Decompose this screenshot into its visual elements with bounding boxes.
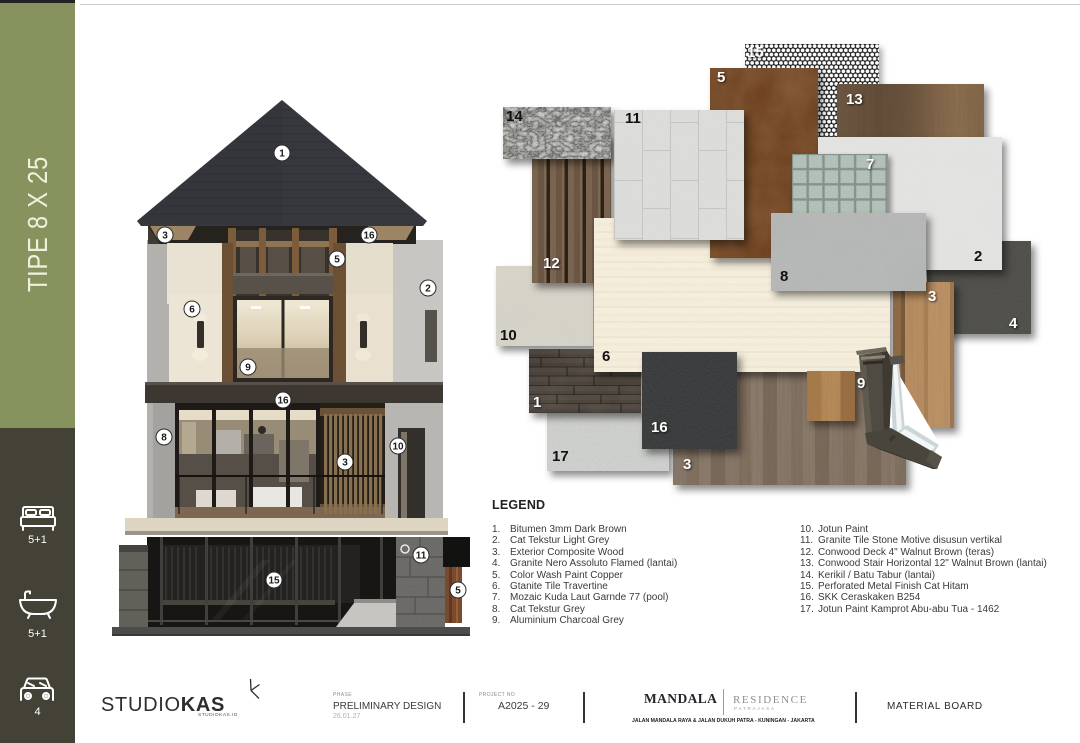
svg-text:3: 3 xyxy=(162,231,168,242)
svg-text:15: 15 xyxy=(268,576,280,587)
svg-text:16: 16 xyxy=(363,231,375,242)
svg-text:10: 10 xyxy=(392,442,404,453)
svg-text:16: 16 xyxy=(277,396,289,407)
svg-text:11: 11 xyxy=(416,551,427,562)
svg-text:3: 3 xyxy=(342,458,348,469)
svg-text:8: 8 xyxy=(161,433,167,444)
svg-text:2: 2 xyxy=(425,284,431,295)
svg-text:5: 5 xyxy=(455,586,461,597)
svg-text:9: 9 xyxy=(245,363,251,374)
svg-text:1: 1 xyxy=(279,149,285,160)
svg-text:5: 5 xyxy=(334,255,340,266)
svg-text:6: 6 xyxy=(189,305,195,316)
